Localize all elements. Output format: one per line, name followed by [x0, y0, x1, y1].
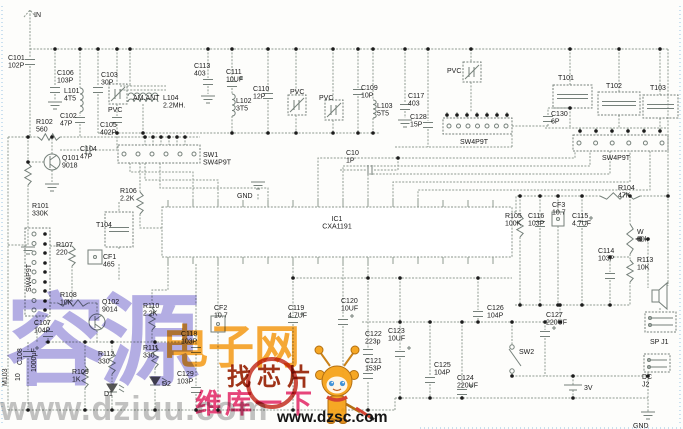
- label-M103: M103: [2, 368, 9, 386]
- label-C120: C12010UF: [341, 298, 358, 313]
- label-GND: GND: [237, 193, 253, 200]
- label-SW1: SW1SW4P9T: [203, 152, 232, 167]
- label-T104: T104: [96, 222, 112, 229]
- ic-cxa1191-body: [162, 207, 512, 257]
- label-R104: R10447K: [618, 185, 635, 200]
- label-1000-F: 1000μF: [31, 348, 38, 372]
- label-C109: C10910P: [361, 85, 378, 100]
- label-C111: C11110UF: [226, 69, 243, 84]
- label-SW4P9T: SW4P9T: [602, 155, 631, 162]
- label-CF2: CF210.7: [214, 305, 228, 320]
- label-AM.ANT: AM.ANT: [133, 95, 160, 102]
- label-Q101: Q1019018: [62, 155, 79, 170]
- label-PVC: PVC: [290, 89, 304, 96]
- label-D2: D2: [162, 381, 171, 388]
- label-3V: 3V: [584, 385, 593, 392]
- label-R112: R112330: [98, 351, 114, 366]
- label-R110: R1102.2K: [143, 303, 159, 318]
- label-R101: R101330K: [32, 203, 49, 218]
- label-D1: D1: [104, 391, 113, 398]
- label-R106: R1062.2K: [120, 188, 137, 203]
- label-C125: C125104P: [434, 362, 451, 377]
- label-C114: C114103P: [598, 248, 615, 263]
- label-L103: L1035T5: [377, 103, 393, 118]
- label-R102: R102560: [36, 119, 53, 134]
- label-L102: L1023T5: [236, 98, 252, 113]
- label-C126: C126104P: [487, 305, 504, 320]
- label-L101: L1014T5: [64, 88, 80, 103]
- label-C122: C122223p: [365, 331, 382, 346]
- label-Q102: Q1029014: [102, 299, 119, 314]
- label-W: W50k: [637, 229, 649, 244]
- label-SP-J1: SP J1: [650, 339, 669, 346]
- label-R113: R11310K: [637, 257, 653, 272]
- label-C115: C1154.7UF: [572, 213, 591, 228]
- label-C106: C106103P: [57, 70, 74, 85]
- label-C117: C117403: [408, 93, 424, 108]
- label-R111: R111330: [143, 345, 159, 360]
- label-C129: C129103P: [177, 371, 194, 386]
- label-PVC: PVC: [319, 95, 333, 102]
- label-C10: C101P: [346, 150, 359, 165]
- label-CF3: CF310.7: [552, 202, 566, 217]
- label-IN: IN: [34, 12, 41, 19]
- schematic-page: INC101102PC106103PL1014T5C10330PPVCAM.AN…: [0, 0, 683, 429]
- label-L104: L1042.2MH.: [163, 95, 186, 110]
- label-C128: C12815P: [410, 114, 427, 129]
- label-PVC: PVC: [447, 68, 461, 75]
- label-C130: C1306P: [551, 111, 568, 126]
- label-C105: C105402P: [100, 122, 117, 137]
- label-C102: C10247P: [60, 113, 77, 128]
- label-C108: C108: [17, 348, 24, 365]
- label-C116: C116103P: [528, 213, 545, 228]
- label-C118: C118103P: [181, 331, 198, 346]
- label-PVC: PVC: [108, 107, 122, 114]
- label-C101: C101102P: [8, 55, 25, 70]
- label-SW4P9T: SW4P9T: [460, 139, 489, 146]
- label-R107: R107220: [56, 242, 73, 257]
- label-T103: T103: [650, 85, 666, 92]
- label-C124: C124220UF: [457, 375, 478, 390]
- schematic-canvas: INC101102PC106103PL1014T5C10330PPVCAM.AN…: [0, 0, 683, 429]
- label-C127: C127220UF: [546, 312, 567, 327]
- label-R105: R105100K: [505, 213, 522, 228]
- label-C121: C121153P: [365, 358, 382, 373]
- label-DC: DCJ2: [642, 374, 652, 389]
- label-C103: C10330P: [101, 72, 118, 87]
- label-CF1: CF1465: [103, 254, 116, 269]
- label-SW2: SW2: [519, 349, 534, 356]
- label-T102: T102: [606, 83, 622, 90]
- label-C123: C12310UF: [388, 328, 405, 343]
- label-C107: C107104P: [34, 320, 51, 335]
- label-SW4P9T: SW4P9T: [26, 263, 33, 292]
- label-C119: C1194.7UF: [288, 305, 307, 320]
- label-10: 10: [15, 373, 22, 381]
- label-C104: C10447P: [80, 146, 97, 161]
- label-T101: T101: [558, 75, 574, 82]
- watermark-badge-circle: [246, 357, 298, 409]
